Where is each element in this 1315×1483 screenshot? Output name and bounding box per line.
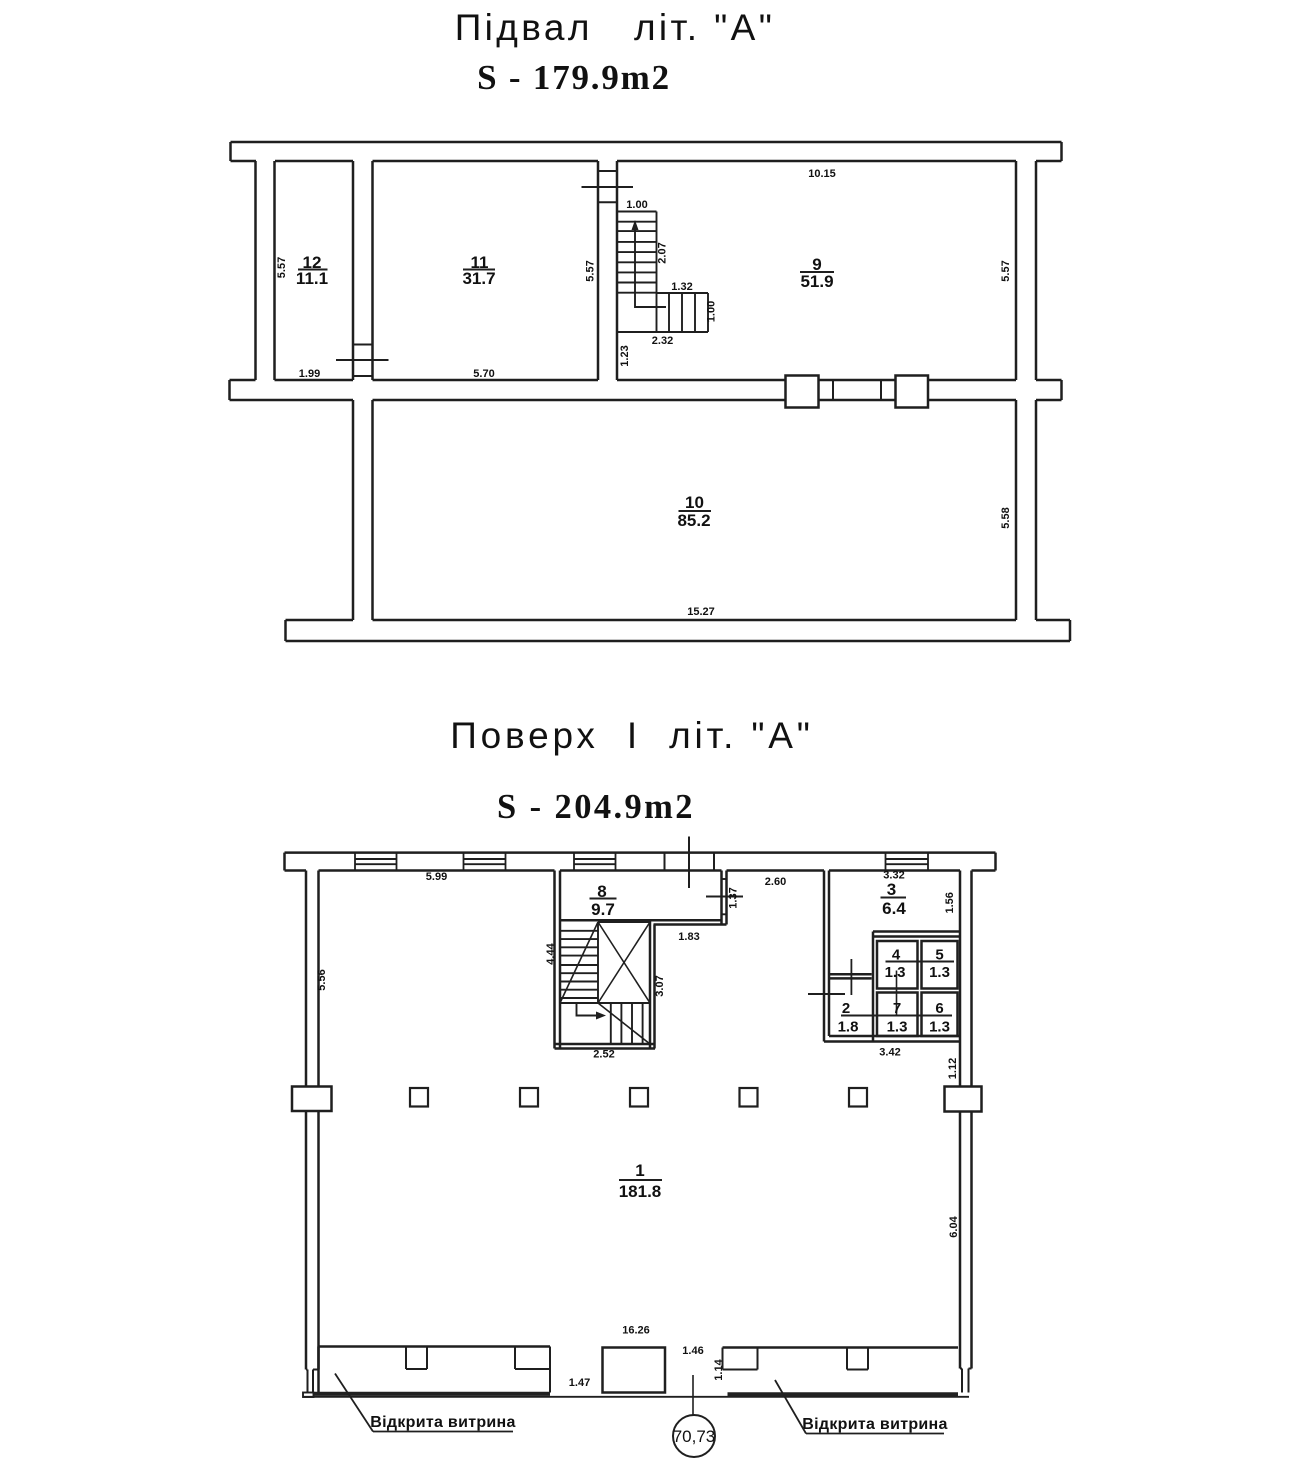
svg-text:1.8: 1.8 bbox=[838, 1019, 859, 1036]
svg-text:1.3: 1.3 bbox=[929, 1019, 950, 1036]
svg-text:1.47: 1.47 bbox=[569, 1377, 590, 1389]
svg-text:2.52: 2.52 bbox=[593, 1049, 614, 1061]
svg-text:Поверх І літ. "А": Поверх І літ. "А" bbox=[450, 715, 813, 756]
svg-text:1.56: 1.56 bbox=[944, 892, 956, 913]
svg-text:16.26: 16.26 bbox=[622, 1325, 650, 1337]
svg-text:31.7: 31.7 bbox=[462, 269, 495, 288]
svg-text:181.8: 181.8 bbox=[619, 1182, 662, 1201]
svg-text:1: 1 bbox=[635, 1161, 644, 1180]
svg-text:2.60: 2.60 bbox=[765, 876, 786, 888]
svg-text:4: 4 bbox=[892, 947, 901, 964]
svg-text:1.00: 1.00 bbox=[706, 301, 718, 322]
svg-text:3.42: 3.42 bbox=[879, 1047, 900, 1059]
svg-text:51.9: 51.9 bbox=[800, 272, 833, 291]
svg-text:70,73: 70,73 bbox=[673, 1427, 716, 1446]
svg-text:11.1: 11.1 bbox=[296, 269, 328, 288]
svg-text:1.46: 1.46 bbox=[682, 1345, 703, 1357]
svg-text:Відкрита витрина: Відкрита витрина bbox=[802, 1416, 947, 1433]
svg-text:Підвал літ. "А": Підвал літ. "А" bbox=[455, 7, 776, 48]
svg-text:2.07: 2.07 bbox=[657, 242, 669, 263]
svg-text:S - 179.9m2: S - 179.9m2 bbox=[477, 58, 671, 97]
svg-text:15.27: 15.27 bbox=[687, 606, 715, 618]
svg-text:5: 5 bbox=[935, 947, 943, 964]
svg-text:1.83: 1.83 bbox=[678, 931, 699, 943]
svg-text:7: 7 bbox=[893, 1000, 901, 1017]
svg-text:10: 10 bbox=[685, 493, 704, 512]
svg-text:1.37: 1.37 bbox=[728, 887, 740, 908]
svg-text:3: 3 bbox=[887, 880, 896, 899]
svg-text:1.3: 1.3 bbox=[887, 1019, 908, 1036]
svg-text:6.04: 6.04 bbox=[948, 1215, 960, 1237]
svg-text:5.57: 5.57 bbox=[585, 260, 597, 281]
svg-text:5.58: 5.58 bbox=[1000, 507, 1012, 528]
svg-text:1.99: 1.99 bbox=[299, 368, 320, 380]
svg-text:3.07: 3.07 bbox=[654, 975, 666, 996]
svg-text:1.23: 1.23 bbox=[619, 345, 631, 366]
svg-text:5.99: 5.99 bbox=[426, 871, 447, 883]
svg-text:6.4: 6.4 bbox=[882, 899, 906, 918]
svg-text:6: 6 bbox=[935, 1000, 943, 1017]
svg-text:1.00: 1.00 bbox=[626, 199, 647, 211]
svg-text:Відкрита витрина: Відкрита витрина bbox=[370, 1414, 515, 1431]
svg-text:85.2: 85.2 bbox=[677, 511, 710, 530]
svg-text:9.7: 9.7 bbox=[591, 900, 615, 919]
svg-text:1.32: 1.32 bbox=[671, 281, 692, 293]
svg-text:4.44: 4.44 bbox=[545, 942, 557, 964]
svg-text:10.15: 10.15 bbox=[808, 168, 836, 180]
svg-text:5.70: 5.70 bbox=[473, 368, 494, 380]
svg-text:5.57: 5.57 bbox=[276, 257, 288, 278]
svg-text:5.57: 5.57 bbox=[1000, 260, 1012, 281]
svg-text:5.56: 5.56 bbox=[316, 969, 328, 990]
svg-text:2.32: 2.32 bbox=[652, 335, 673, 347]
svg-text:1.3: 1.3 bbox=[929, 964, 950, 981]
svg-text:1.12: 1.12 bbox=[947, 1058, 959, 1079]
svg-text:S - 204.9m2: S - 204.9m2 bbox=[497, 788, 695, 826]
svg-text:1.3: 1.3 bbox=[885, 964, 906, 981]
svg-text:2: 2 bbox=[842, 1000, 850, 1017]
